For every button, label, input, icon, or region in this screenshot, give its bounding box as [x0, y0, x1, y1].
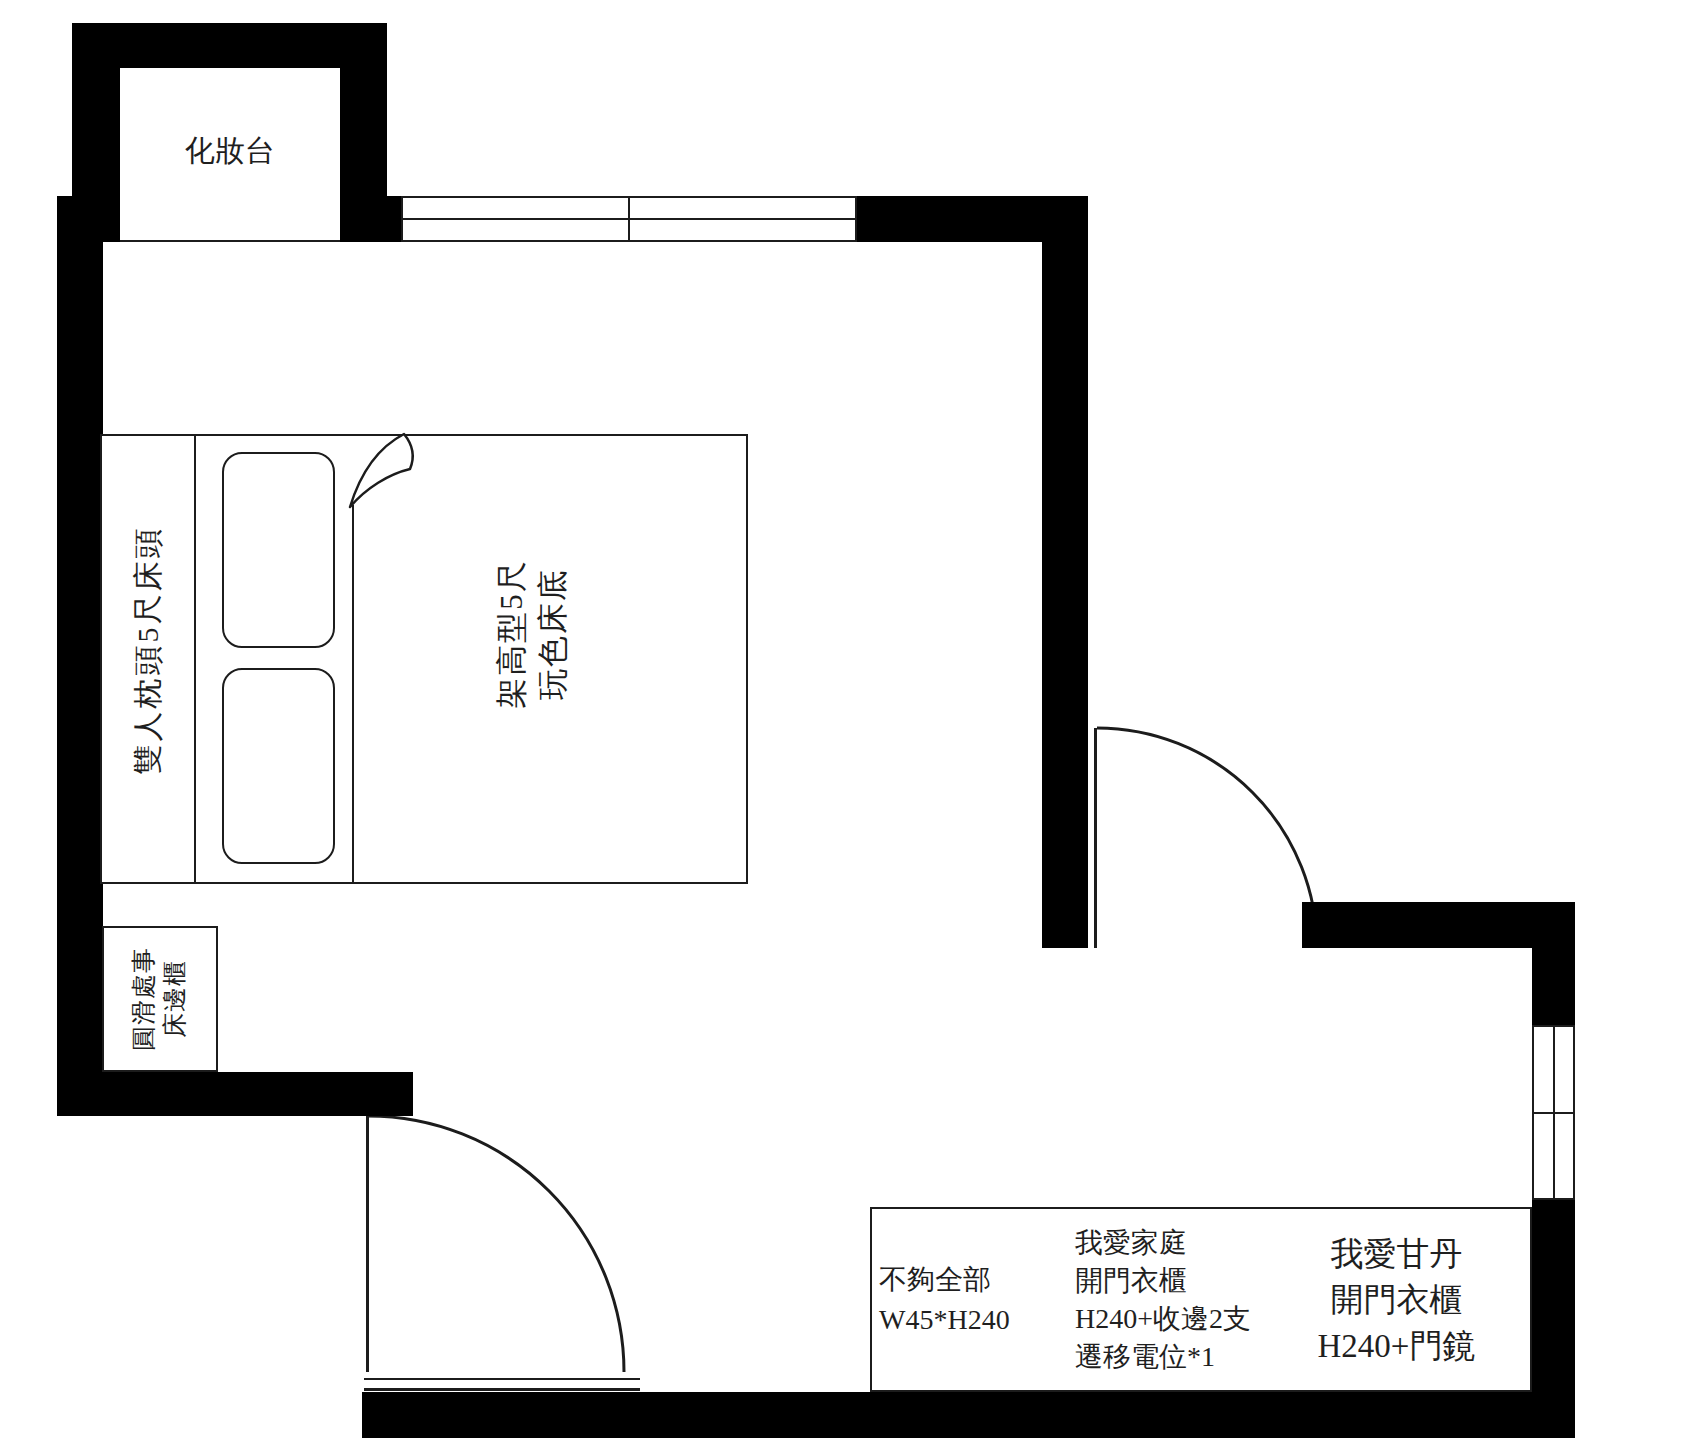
- wardrobe-box-1-line-1: 不夠全部: [879, 1260, 1003, 1300]
- floor-plan: 化妝台 雙人枕頭5尺床頭 架高型5尺 玩色床底 圓滑處事 床邊櫃 不夠全部 W4…: [0, 0, 1684, 1440]
- wardrobe-box-3-line-1: 我愛甘丹: [1263, 1231, 1530, 1277]
- bed-base-label-line-2: 玩色床底: [532, 559, 573, 709]
- wardrobe-box-3-label: 我愛甘丹 開門衣櫃 H240+門鏡: [1263, 1209, 1530, 1390]
- bedside-cabinet-label: 圓滑處事 床邊櫃: [128, 947, 190, 1051]
- wardrobe-box-2-label: 我愛家庭 開門衣櫃 H240+收邊2支 遷移電位*1: [1003, 1209, 1263, 1390]
- vanity-label: 化妝台: [120, 131, 340, 172]
- blanket-fold-icon: [350, 434, 413, 507]
- wardrobe-box-1-line-2: W45*H240: [879, 1300, 1003, 1340]
- bedside-cabinet-label-line-1: 圓滑處事: [128, 947, 159, 1051]
- wardrobe-box-2-line-1: 我愛家庭: [1075, 1224, 1263, 1262]
- wardrobe-box-1-label: 不夠全部 W45*H240: [872, 1209, 1003, 1390]
- wardrobe-box-2-line-2: 開門衣櫃: [1075, 1262, 1263, 1300]
- headboard-label: 雙人枕頭5尺床頭: [128, 526, 169, 775]
- bed-base-label: 架高型5尺 玩色床底: [491, 559, 573, 709]
- bedside-cabinet-label-line-2: 床邊櫃: [159, 947, 190, 1051]
- wardrobe-box-3-line-3: H240+門鏡: [1263, 1323, 1530, 1369]
- wardrobe-box-3-line-2: 開門衣櫃: [1263, 1277, 1530, 1323]
- bed-base-label-line-1: 架高型5尺: [491, 559, 532, 709]
- wardrobe-box-2-line-4: 遷移電位*1: [1075, 1338, 1263, 1376]
- wardrobe-box-2-line-3: H240+收邊2支: [1075, 1300, 1263, 1338]
